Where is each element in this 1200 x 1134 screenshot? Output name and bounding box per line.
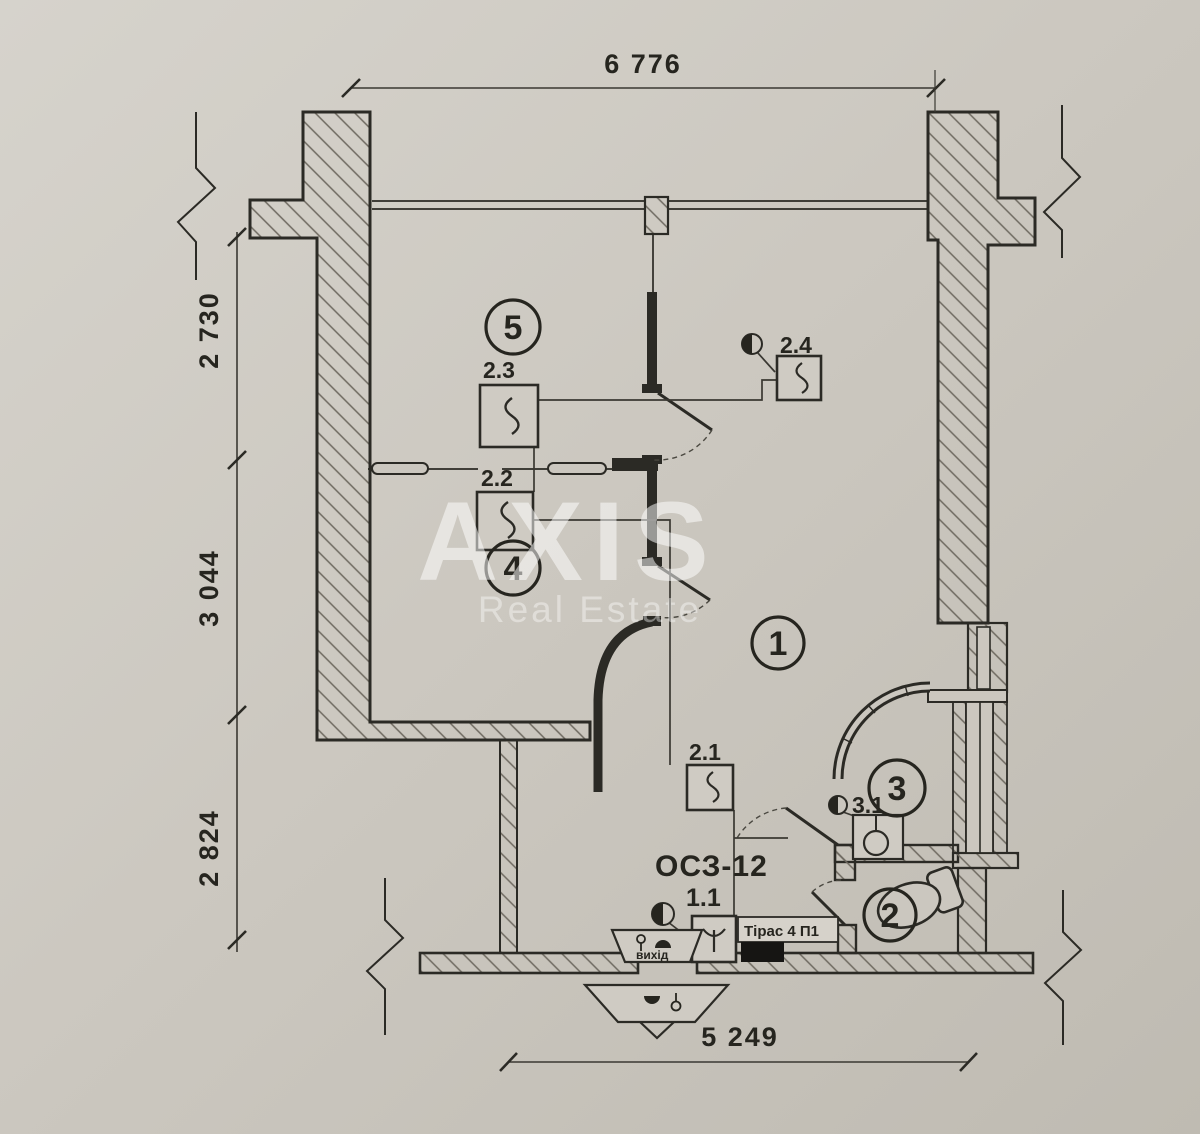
dimension-top-value: 6 776	[604, 49, 682, 79]
dimension-left-middle-value: 3 044	[194, 549, 224, 627]
room-number-3: 3	[888, 770, 907, 808]
fire-panel-label: Тірас 4 П1	[744, 923, 819, 940]
exit-sign-label: вихід	[636, 948, 669, 962]
dimension-left-bottom-value: 2 824	[194, 809, 224, 887]
watermark-brand: AXIS	[417, 479, 718, 604]
label-3-1: 3.1	[852, 792, 884, 818]
watermark-tagline: Real Estate	[478, 589, 702, 630]
wall-partition-lower-left	[500, 740, 517, 953]
label-2-1: 2.1	[689, 739, 721, 765]
label-2-3: 2.3	[483, 357, 515, 383]
dimension-left-top-value: 2 730	[194, 291, 224, 369]
floor-plan-page: Тірас 4 П1 вихід 5 4 1 3 2	[0, 0, 1200, 1134]
detector-icon-2-4	[742, 334, 762, 354]
wall-room2-left	[838, 925, 856, 953]
wall-lower-right	[958, 868, 986, 953]
exit-sign: вихід	[612, 930, 702, 962]
label-osz: ОСЗ-12	[655, 850, 768, 883]
radiator-box-2-1	[687, 765, 733, 810]
shaft-strip-left	[953, 702, 966, 853]
room-number-2: 2	[881, 897, 900, 935]
fire-panel-body	[741, 942, 784, 962]
shaft-strip-right	[993, 702, 1007, 853]
floor-plan-drawing: Тірас 4 П1 вихід 5 4 1 3 2	[0, 0, 1200, 1134]
shaft-ledge	[953, 853, 1018, 868]
label-2-4: 2.4	[780, 332, 812, 358]
wall-bottom-left	[420, 953, 638, 973]
room-number-1: 1	[769, 625, 788, 663]
dimension-bottom-value: 5 249	[701, 1022, 779, 1052]
wall-top-column	[645, 197, 668, 234]
radiator-box-2-3	[480, 385, 538, 447]
label-1-1: 1.1	[686, 884, 721, 912]
detector-icon-1-1	[652, 903, 674, 925]
radiator-box-2-4	[777, 356, 821, 400]
detector-icon-3-1	[829, 796, 847, 814]
room-number-5: 5	[504, 309, 523, 347]
